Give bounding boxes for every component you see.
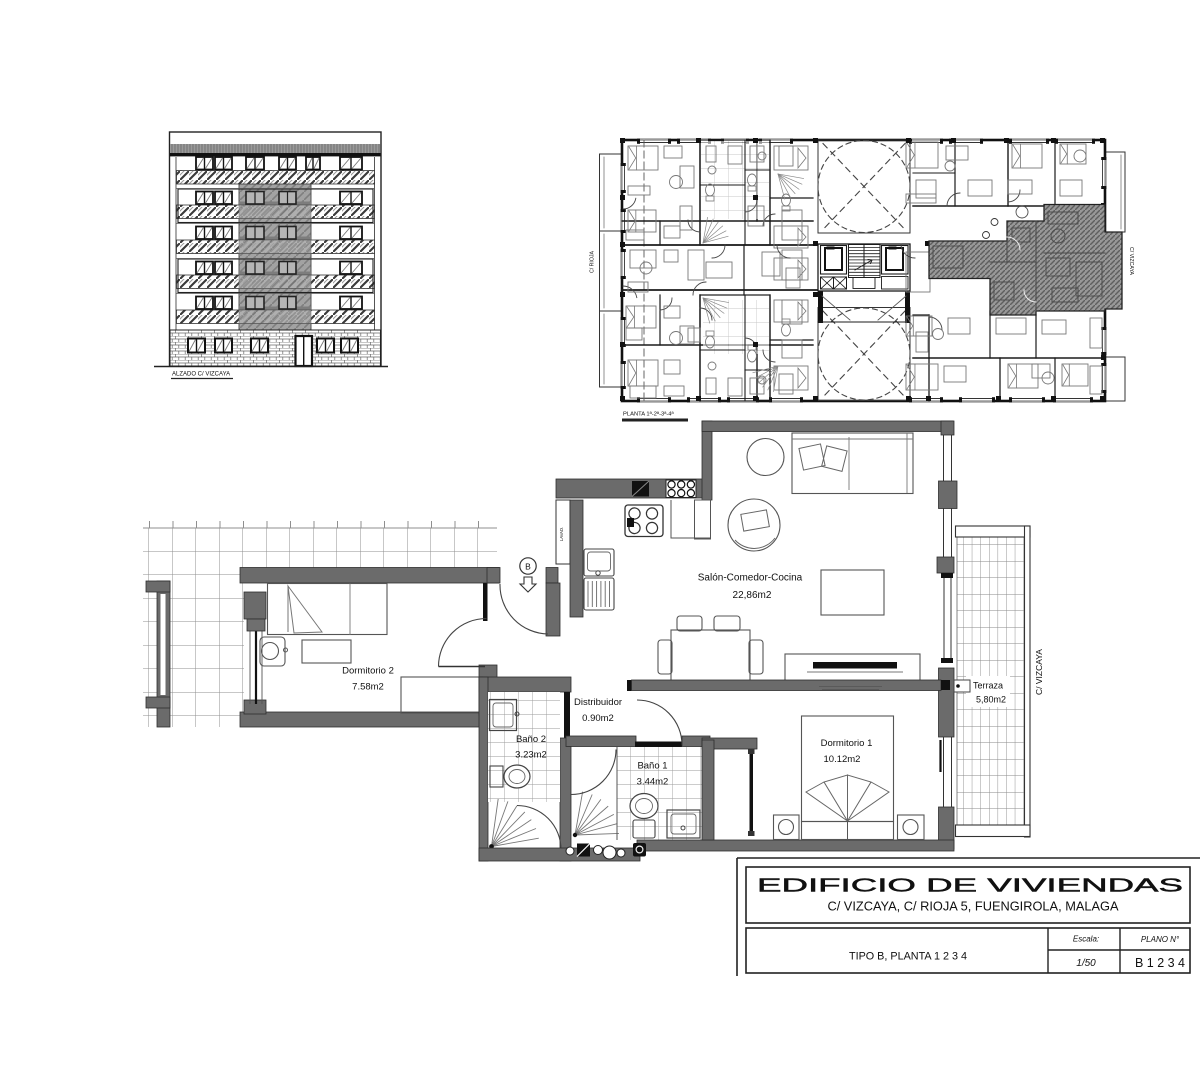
svg-text:3.23m2: 3.23m2 — [515, 750, 547, 761]
svg-text:PLANTA 1ª-2ª-3ª-4ª: PLANTA 1ª-2ª-3ª-4ª — [623, 411, 675, 418]
svg-text:Dormitorio 2: Dormitorio 2 — [342, 666, 394, 677]
svg-text:C/ RIOJA: C/ RIOJA — [590, 251, 596, 273]
svg-text:EDIFICIO DE VIVIENDAS: EDIFICIO DE VIVIENDAS — [757, 876, 1183, 896]
svg-text:B 1 2 3 4: B 1 2 3 4 — [1135, 956, 1185, 970]
svg-text:TIPO B, PLANTA 1 2 3 4: TIPO B, PLANTA 1 2 3 4 — [849, 951, 967, 963]
svg-text:1/50: 1/50 — [1076, 958, 1096, 969]
svg-text:LAVAD.: LAVAD. — [559, 527, 564, 541]
svg-text:PLANO N°: PLANO N° — [1141, 935, 1180, 944]
svg-text:Baño 2: Baño 2 — [516, 734, 546, 745]
svg-text:Terraza: Terraza — [973, 681, 1003, 691]
svg-text:ALZADO C/ VIZCAYA: ALZADO C/ VIZCAYA — [172, 372, 230, 378]
svg-text:Escala:: Escala: — [1073, 935, 1099, 944]
svg-text:0.90m2: 0.90m2 — [582, 713, 614, 724]
svg-text:7.58m2: 7.58m2 — [352, 682, 384, 693]
svg-text:Distribuidor: Distribuidor — [574, 697, 622, 708]
svg-text:3.44m2: 3.44m2 — [637, 777, 669, 788]
svg-text:10.12m2: 10.12m2 — [824, 754, 861, 765]
svg-text:Salón-Comedor-Cocina: Salón-Comedor-Cocina — [698, 573, 803, 584]
svg-text:C/ VIZCAYA: C/ VIZCAYA — [1034, 649, 1044, 695]
svg-text:C/ VIZCAYA: C/ VIZCAYA — [1128, 247, 1134, 276]
svg-text:5,80m2: 5,80m2 — [976, 695, 1006, 705]
svg-text:22,86m2: 22,86m2 — [733, 590, 772, 601]
svg-text:B: B — [525, 562, 531, 572]
svg-text:C/ VIZCAYA, C/ RIOJA 5, FUENGI: C/ VIZCAYA, C/ RIOJA 5, FUENGIROLA, MALA… — [827, 899, 1119, 914]
svg-text:Dormitorio 1: Dormitorio 1 — [821, 738, 873, 749]
svg-text:Baño 1: Baño 1 — [637, 761, 667, 772]
